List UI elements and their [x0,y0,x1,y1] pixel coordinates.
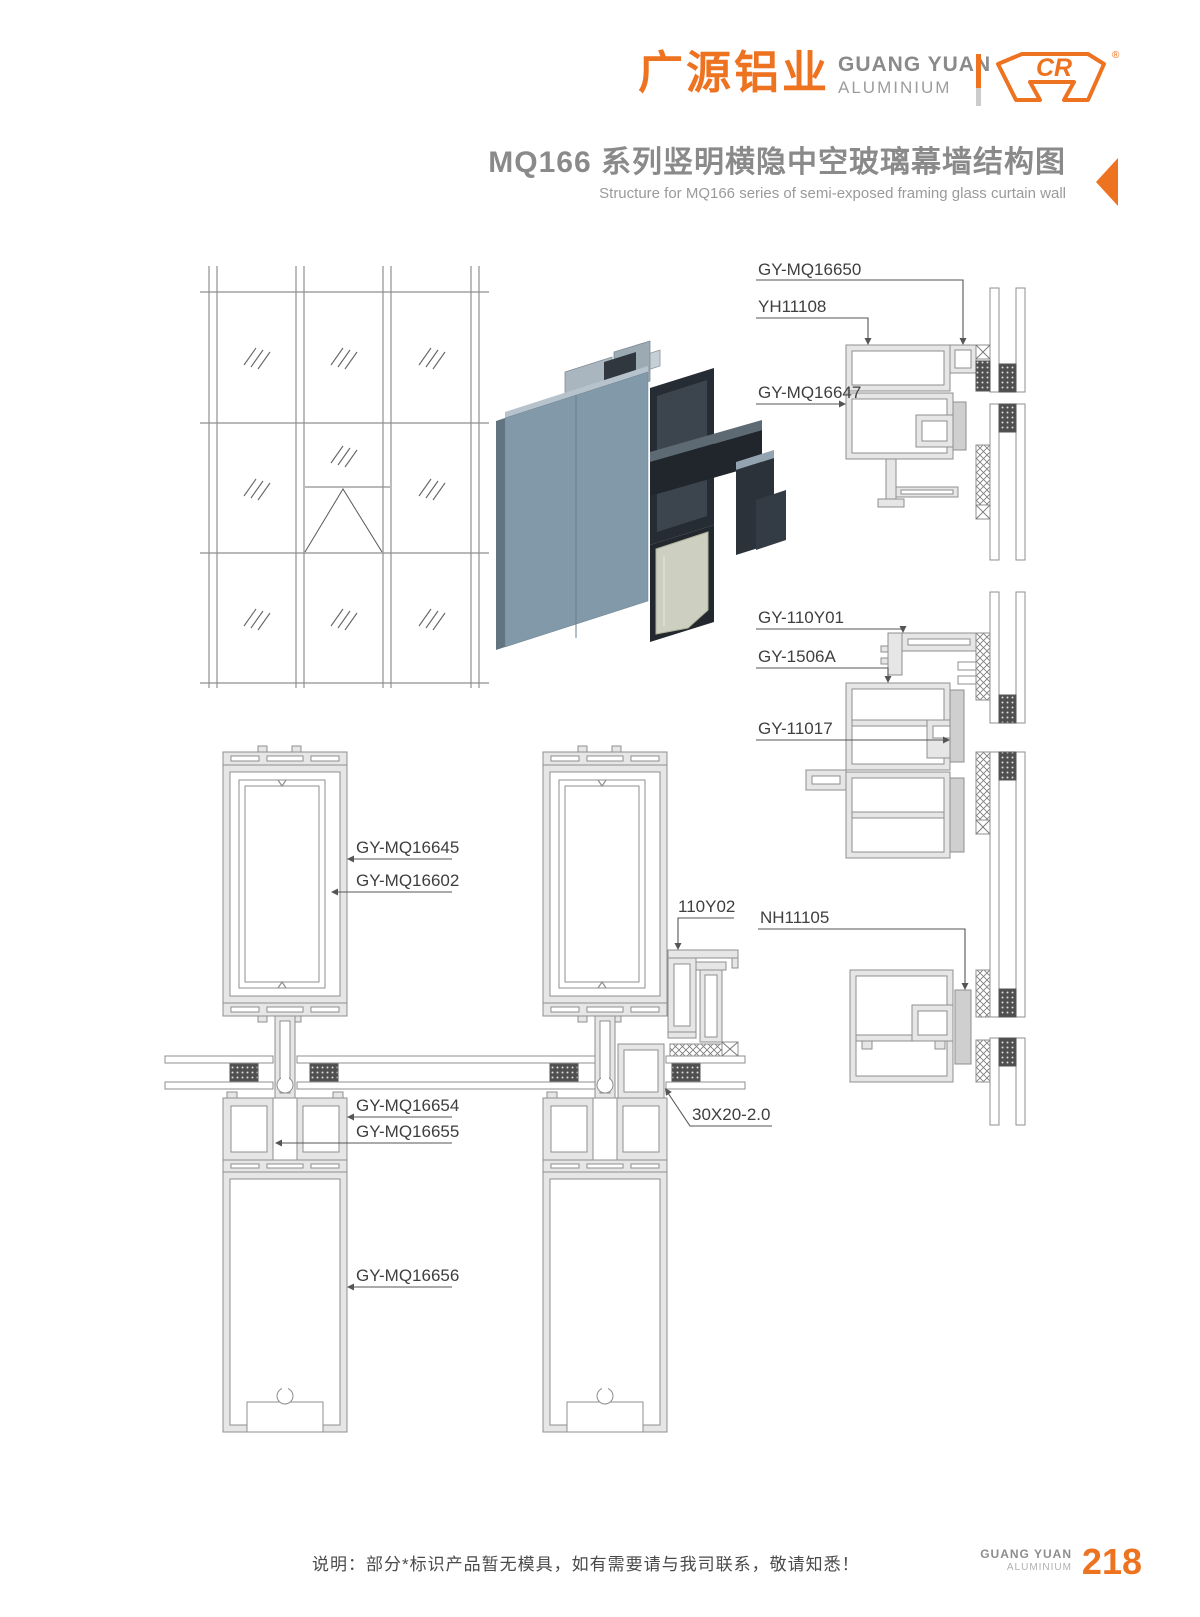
label-gy-mq16650: GY-MQ16650 [758,260,861,279]
glass-spacer-blocks [999,364,1016,1066]
label-gy-mq16602: GY-MQ16602 [356,871,459,890]
assembly-3d-render [496,341,786,650]
label-gy-110y01: GY-110Y01 [758,608,844,627]
detail-bottom-section [850,970,990,1082]
footer-brand: GUANG YUAN ALUMINIUM [980,1548,1072,1573]
label-110y02: 110Y02 [678,897,735,916]
label-nh11105: NH11105 [760,908,829,927]
profile-110y02 [668,950,738,1056]
detail-top-section [846,345,990,519]
label-gy-mq16647: GY-MQ16647 [758,383,861,402]
structure-drawing: GY-MQ16650 YH11108 GY-MQ16647 GY-110Y01 … [0,0,1200,1617]
label-gy-mq16655: GY-MQ16655 [356,1122,459,1141]
label-gy-mq16645: GY-MQ16645 [356,838,459,857]
footer-brand-line1: GUANG YUAN [980,1548,1072,1560]
footer-brand-line2: ALUMINIUM [980,1563,1072,1573]
detail-mid-section [806,633,990,858]
footer-note: 说明：部分*标识产品暂无模具，如有需要请与我司联系，敬请知悉！ [312,1550,860,1575]
label-yh11108: YH11108 [758,297,826,316]
steel-tube-30x20 [618,1044,664,1098]
label-30x20-tube: 30X20-2.0 [692,1105,770,1124]
glass-hatch-marks [244,348,445,630]
label-gy-1506a: GY-1506A [758,647,836,666]
catalog-page: 广源铝业 GUANG YUAN ALUMINIUM CR ® MQ166 系列竖… [0,0,1200,1617]
label-gy-mq16654: GY-MQ16654 [356,1096,459,1115]
label-gy-11017: GY-11017 [758,719,833,738]
glass-column [990,288,1025,1125]
elevation-view [200,266,489,688]
openable-vent-triangle [305,489,382,552]
page-number: 218 [1082,1541,1142,1583]
label-gy-mq16656: GY-MQ16656 [356,1266,459,1285]
